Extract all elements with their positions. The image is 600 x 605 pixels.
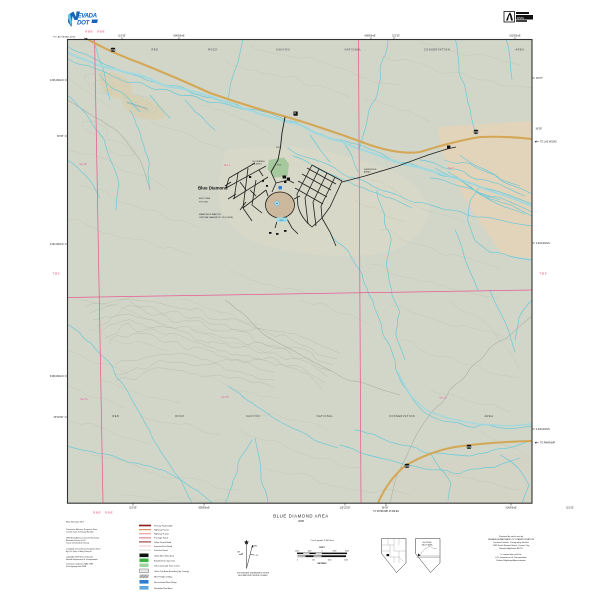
svg-text:Primitive Road: Primitive Road	[154, 549, 168, 552]
svg-text:CANYON: CANYON	[246, 414, 260, 418]
svg-text:115°15′: 115°15′	[566, 508, 574, 510]
svg-text:2000: 2000	[333, 551, 337, 553]
svg-text:Unincorporated Town Limits: Unincorporated Town Limits	[154, 564, 180, 567]
svg-text:Prepared by and in use by: Prepared by and in use by	[499, 535, 524, 538]
svg-text:U.S. Department of Transportat: U.S. Department of Transportation	[495, 556, 527, 559]
svg-text:CONSERVATION: CONSERVATION	[424, 48, 450, 52]
svg-text:DOT: DOT	[77, 20, 91, 27]
svg-text:614000mE: 614000mE	[505, 508, 517, 510]
svg-text:ROCK: ROCK	[208, 48, 218, 52]
svg-text:Sec 1: Sec 1	[224, 164, 231, 167]
svg-text:36°00′: 36°00′	[382, 508, 389, 510]
svg-text:TRL (HIST): TRL (HIST)	[252, 163, 262, 165]
svg-text:Improved Dirt Road: Improved Dirt Road	[154, 545, 173, 548]
svg-text:AREA: AREA	[515, 48, 524, 52]
svg-text:36°05′: 36°05′	[536, 129, 543, 131]
svg-text:Park: Park	[277, 165, 281, 167]
svg-text:Blue Diamond: Blue Diamond	[198, 186, 228, 191]
svg-text:Roadside Rest Area: Roadside Rest Area	[154, 587, 173, 590]
svg-text:1000: 1000	[308, 551, 312, 553]
svg-text:In cooperation with the: In cooperation with the	[501, 553, 523, 556]
svg-text:Highway Gravel: Highway Gravel	[154, 533, 169, 536]
svg-text:TO LAS VEGAS: TO LAS VEGAS	[540, 141, 557, 144]
svg-text:DECLINATION AT CENTER OF SHEET: DECLINATION AT CENTER OF SHEET	[238, 574, 268, 577]
svg-text:TO LAS VEGAS 20 MI.: TO LAS VEGAS 20 MI.	[53, 36, 76, 39]
svg-text:FHWA: FHWA	[517, 17, 524, 20]
svg-text:Established City Limits: Established City Limits	[154, 559, 175, 562]
svg-text:MN: MN	[254, 546, 258, 548]
svg-text:R 58 E: R 58 E	[85, 31, 93, 34]
svg-text:36°07″: 36°07″	[536, 78, 543, 80]
svg-text:AREA: AREA	[484, 414, 493, 418]
svg-text:Other City Area Boundary (by C: Other City Area Boundary (by County)	[154, 570, 189, 573]
svg-text:OFFICIAL MAGNETIC 12 E (2008): OFFICIAL MAGNETIC 12 E (2008)	[199, 216, 233, 219]
svg-text:NEVADA DEPARTMENT OF TRANSPORT: NEVADA DEPARTMENT OF TRANSPORTATION	[488, 538, 534, 541]
svg-text:0: 0	[297, 559, 298, 561]
svg-text:TO PAHRUMP 45 MILES: TO PAHRUMP 45 MILES	[373, 510, 399, 513]
svg-text:Frontage Road: Frontage Road	[154, 537, 169, 540]
svg-text:0: 0	[322, 551, 323, 553]
svg-text:1 inch equals 2,000 feet: 1 inch equals 2,000 feet	[310, 539, 334, 542]
svg-text:BLUE DIAMOND AREA: BLUE DIAMOND AREA	[273, 514, 329, 519]
svg-text:612000mE: 612000mE	[509, 36, 521, 38]
svg-text:Recreational Boat Ramp: Recreational Boat Ramp	[154, 581, 177, 584]
svg-text:12°: 12°	[256, 555, 259, 557]
svg-text:MEAN DECLINATION: MEAN DECLINATION	[199, 213, 221, 216]
svg-text:Federal Highway Administration: Federal Highway Administration	[496, 559, 526, 562]
svg-text:TO PAHRUMP: TO PAHRUMP	[540, 442, 556, 445]
svg-text:Post highway data 2008: Post highway data 2008	[66, 565, 86, 568]
svg-text:NATIONAL: NATIONAL	[317, 414, 334, 418]
svg-text:AREA 2: AREA 2	[364, 170, 371, 173]
svg-text:Sec 7: Sec 7	[448, 167, 455, 170]
svg-text:EVADA: EVADA	[78, 13, 98, 20]
svg-text:RED: RED	[152, 48, 159, 52]
svg-text:1000: 1000	[328, 559, 332, 561]
svg-text:115°20′: 115°20′	[392, 36, 400, 38]
svg-text:4,006,000mN: 4,006,000mN	[50, 80, 64, 82]
svg-text:Coast and Geodetic Survey: Coast and Geodetic Survey	[66, 542, 89, 545]
svg-text:500: 500	[312, 559, 315, 561]
svg-text:115°22′30″: 115°22′30″	[340, 508, 351, 510]
svg-text:R 59 E: R 59 E	[105, 512, 113, 515]
svg-text:Urban Area Boundary: Urban Area Boundary	[154, 554, 175, 557]
svg-text:Highway Paved: Highway Paved	[154, 530, 169, 532]
svg-text:36°02′30″: 36°02′30″	[54, 417, 64, 419]
svg-text:2000: 2000	[295, 551, 299, 553]
svg-text:Location Division, Cartography: Location Division, Cartography Section	[493, 541, 530, 544]
svg-text:RED: RED	[113, 414, 120, 418]
svg-text:3,998,000mN: 3,998,000mN	[50, 376, 64, 378]
svg-text:4,000,000mN: 4,000,000mN	[536, 429, 550, 431]
svg-text:METERS: METERS	[317, 563, 327, 565]
svg-text:T 22 S: T 22 S	[52, 273, 59, 276]
svg-text:606000mE: 606000mE	[198, 508, 210, 510]
svg-text:159: 159	[111, 48, 116, 52]
svg-text:Mean Elevation 3307: Mean Elevation 3307	[66, 521, 84, 524]
svg-text:CANYON: CANYON	[276, 48, 290, 52]
svg-text:NDOT Right of Way: NDOT Right of Way	[154, 575, 173, 578]
svg-text:1500: 1500	[344, 559, 348, 561]
svg-text:Primary Federal Aid: Primary Federal Aid	[154, 524, 173, 527]
svg-text:1263 South Stewart Street, Car: 1263 South Stewart Street, Carson City,	[493, 544, 530, 547]
svg-text:36°05′: 36°05′	[57, 136, 64, 138]
svg-text:Nevada Department of Transport: Nevada Department of Transportation	[66, 558, 98, 561]
svg-text:604000mE: 604000mE	[173, 36, 185, 38]
svg-text:T 22 S: T 22 S	[539, 273, 546, 276]
svg-text:NATIONAL: NATIONAL	[345, 48, 362, 52]
svg-text:WELL: WELL	[279, 220, 285, 222]
svg-text:Sec 31: Sec 31	[80, 398, 88, 401]
svg-text:POP 282: POP 282	[199, 202, 209, 204]
svg-text:Central Zone, Summary Meridian: Central Zone, Summary Meridian	[66, 531, 94, 534]
svg-text:Sec 35: Sec 35	[221, 396, 229, 399]
svg-text:160: 160	[405, 464, 410, 468]
svg-text:R 58 E: R 58 E	[93, 512, 101, 515]
svg-text:ROCK: ROCK	[175, 414, 185, 418]
svg-text:FEET: FEET	[319, 547, 325, 549]
svg-text:Other Paved Road: Other Paved Road	[154, 541, 172, 544]
svg-text:4,004,000mN: 4,004,000mN	[536, 243, 550, 245]
svg-text:608000mE: 608000mE	[364, 36, 376, 38]
svg-text:Sec 36: Sec 36	[79, 163, 87, 166]
svg-text:Sec 12: Sec 12	[439, 397, 447, 400]
svg-text:4,002,000mN: 4,002,000mN	[50, 244, 64, 246]
svg-text:CONSERVATION: CONSERVATION	[389, 414, 415, 418]
svg-text:159: 159	[474, 130, 479, 134]
svg-text:R 59 E: R 59 E	[97, 31, 105, 34]
svg-text:115°25′: 115°25′	[129, 508, 137, 510]
svg-text:Nevada Highlands 89712: Nevada Highlands 89712	[499, 548, 523, 550]
svg-text:4000: 4000	[345, 551, 349, 553]
svg-text:115°25′: 115°25′	[118, 36, 126, 38]
svg-text:ELEV 3396: ELEV 3396	[199, 198, 211, 200]
svg-text:by U.S. Dept. of Hwy Principal: by U.S. Dept. of Hwy Principal	[66, 550, 92, 553]
svg-text:160: 160	[467, 445, 472, 449]
svg-text:2008: 2008	[298, 519, 304, 523]
